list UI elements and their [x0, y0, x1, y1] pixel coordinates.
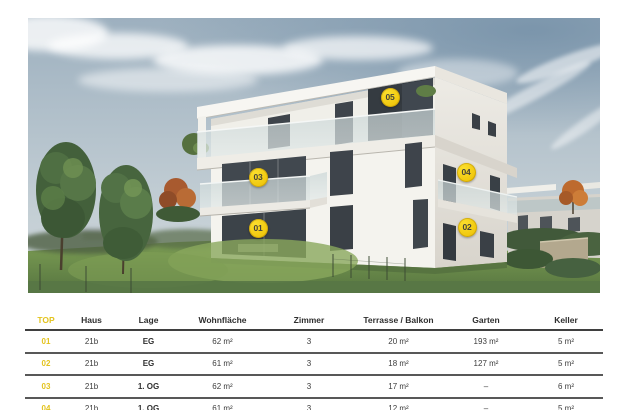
table-row-01: 0121bEG62 m²320 m²193 m²5 m² — [25, 331, 603, 354]
table-row-03: 0321b1. OG62 m²317 m²–6 m² — [25, 376, 603, 399]
cell-3-1: 21b — [67, 404, 116, 410]
cell-2-3: 62 m² — [181, 382, 264, 391]
table-body: 0121bEG62 m²320 m²193 m²5 m²0221bEG61 m²… — [25, 331, 603, 410]
column-header-2: Lage — [116, 315, 181, 325]
listing-page: 0102030405 TOPHausLageWohnflächeZimmerTe… — [0, 0, 620, 410]
column-header-0: TOP — [25, 315, 67, 325]
unit-marker-02: 02 — [458, 218, 477, 237]
cell-0-5: 20 m² — [354, 337, 443, 346]
column-header-7: Keller — [529, 315, 603, 325]
cell-1-2: EG — [116, 359, 181, 368]
cell-2-2: 1. OG — [116, 382, 181, 391]
unit-marker-05: 05 — [381, 88, 400, 107]
cell-0-4: 3 — [264, 337, 354, 346]
cell-2-6: – — [443, 382, 529, 391]
cell-3-7: 5 m² — [529, 404, 603, 410]
table-header-row: TOPHausLageWohnflächeZimmerTerrasse / Ba… — [25, 310, 603, 331]
cell-2-1: 21b — [67, 382, 116, 391]
unit-marker-03: 03 — [249, 168, 268, 187]
cell-0-2: EG — [116, 337, 181, 346]
cell-0-6: 193 m² — [443, 337, 529, 346]
cell-1-3: 61 m² — [181, 359, 264, 368]
cell-0-1: 21b — [67, 337, 116, 346]
cell-2-5: 17 m² — [354, 382, 443, 391]
cell-3-2: 1. OG — [116, 404, 181, 410]
cell-3-0: 04 — [25, 404, 67, 410]
building-render-illustration — [28, 18, 600, 293]
table-row-02: 0221bEG61 m²318 m²127 m²5 m² — [25, 354, 603, 377]
cell-2-0: 03 — [25, 382, 67, 391]
column-header-6: Garten — [443, 315, 529, 325]
column-header-3: Wohnfläche — [181, 315, 264, 325]
unit-marker-01: 01 — [249, 219, 268, 238]
cell-3-5: 12 m² — [354, 404, 443, 410]
column-header-4: Zimmer — [264, 315, 354, 325]
cell-2-7: 6 m² — [529, 382, 603, 391]
building-render-photo — [28, 18, 600, 293]
cell-1-6: 127 m² — [443, 359, 529, 368]
table-row-04: 0421b1. OG61 m²312 m²–5 m² — [25, 399, 603, 410]
cell-1-5: 18 m² — [354, 359, 443, 368]
unit-marker-04: 04 — [457, 163, 476, 182]
cell-0-7: 5 m² — [529, 337, 603, 346]
cell-3-4: 3 — [264, 404, 354, 410]
cell-3-6: – — [443, 404, 529, 410]
column-header-5: Terrasse / Balkon — [354, 315, 443, 325]
cell-1-4: 3 — [264, 359, 354, 368]
column-header-1: Haus — [67, 315, 116, 325]
cell-1-0: 02 — [25, 359, 67, 368]
units-table: TOPHausLageWohnflächeZimmerTerrasse / Ba… — [25, 310, 603, 410]
cell-2-4: 3 — [264, 382, 354, 391]
cell-1-1: 21b — [67, 359, 116, 368]
cell-1-7: 5 m² — [529, 359, 603, 368]
cell-0-0: 01 — [25, 337, 67, 346]
cell-0-3: 62 m² — [181, 337, 264, 346]
cell-3-3: 61 m² — [181, 404, 264, 410]
